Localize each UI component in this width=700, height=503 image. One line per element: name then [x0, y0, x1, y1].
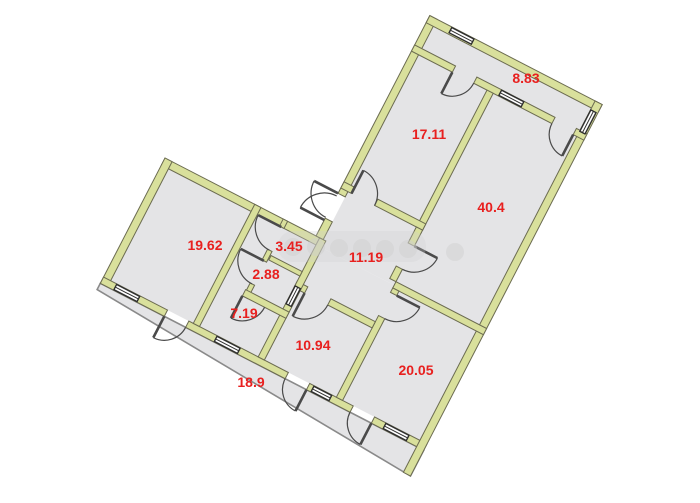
area-label-room-7.19: 7.19	[230, 305, 257, 321]
watermark-glyph	[307, 238, 325, 256]
area-label-room-17.11: 17.11	[412, 126, 446, 142]
watermark-glyph	[446, 243, 464, 261]
floorplan-drawing: 19.623.452.887.1910.9418.920.0511.1917.1…	[0, 0, 700, 503]
area-label-loggia-8.83: 8.83	[512, 70, 539, 86]
area-label-room-10.94: 10.94	[295, 337, 330, 353]
area-label-corridor-18.9: 18.9	[237, 374, 264, 390]
area-label-room-40.4: 40.4	[477, 199, 504, 215]
floorplan-page: 19.623.452.887.1910.9418.920.0511.1917.1…	[0, 0, 700, 503]
area-label-room-3.45: 3.45	[275, 238, 302, 254]
area-label-room-19.62: 19.62	[187, 237, 222, 253]
area-label-hall-11.19: 11.19	[349, 249, 383, 265]
area-label-room-2.88: 2.88	[252, 266, 279, 282]
watermark-glyph	[330, 239, 348, 257]
watermark-glyph	[399, 240, 417, 258]
area-label-room-20.05: 20.05	[398, 362, 433, 378]
